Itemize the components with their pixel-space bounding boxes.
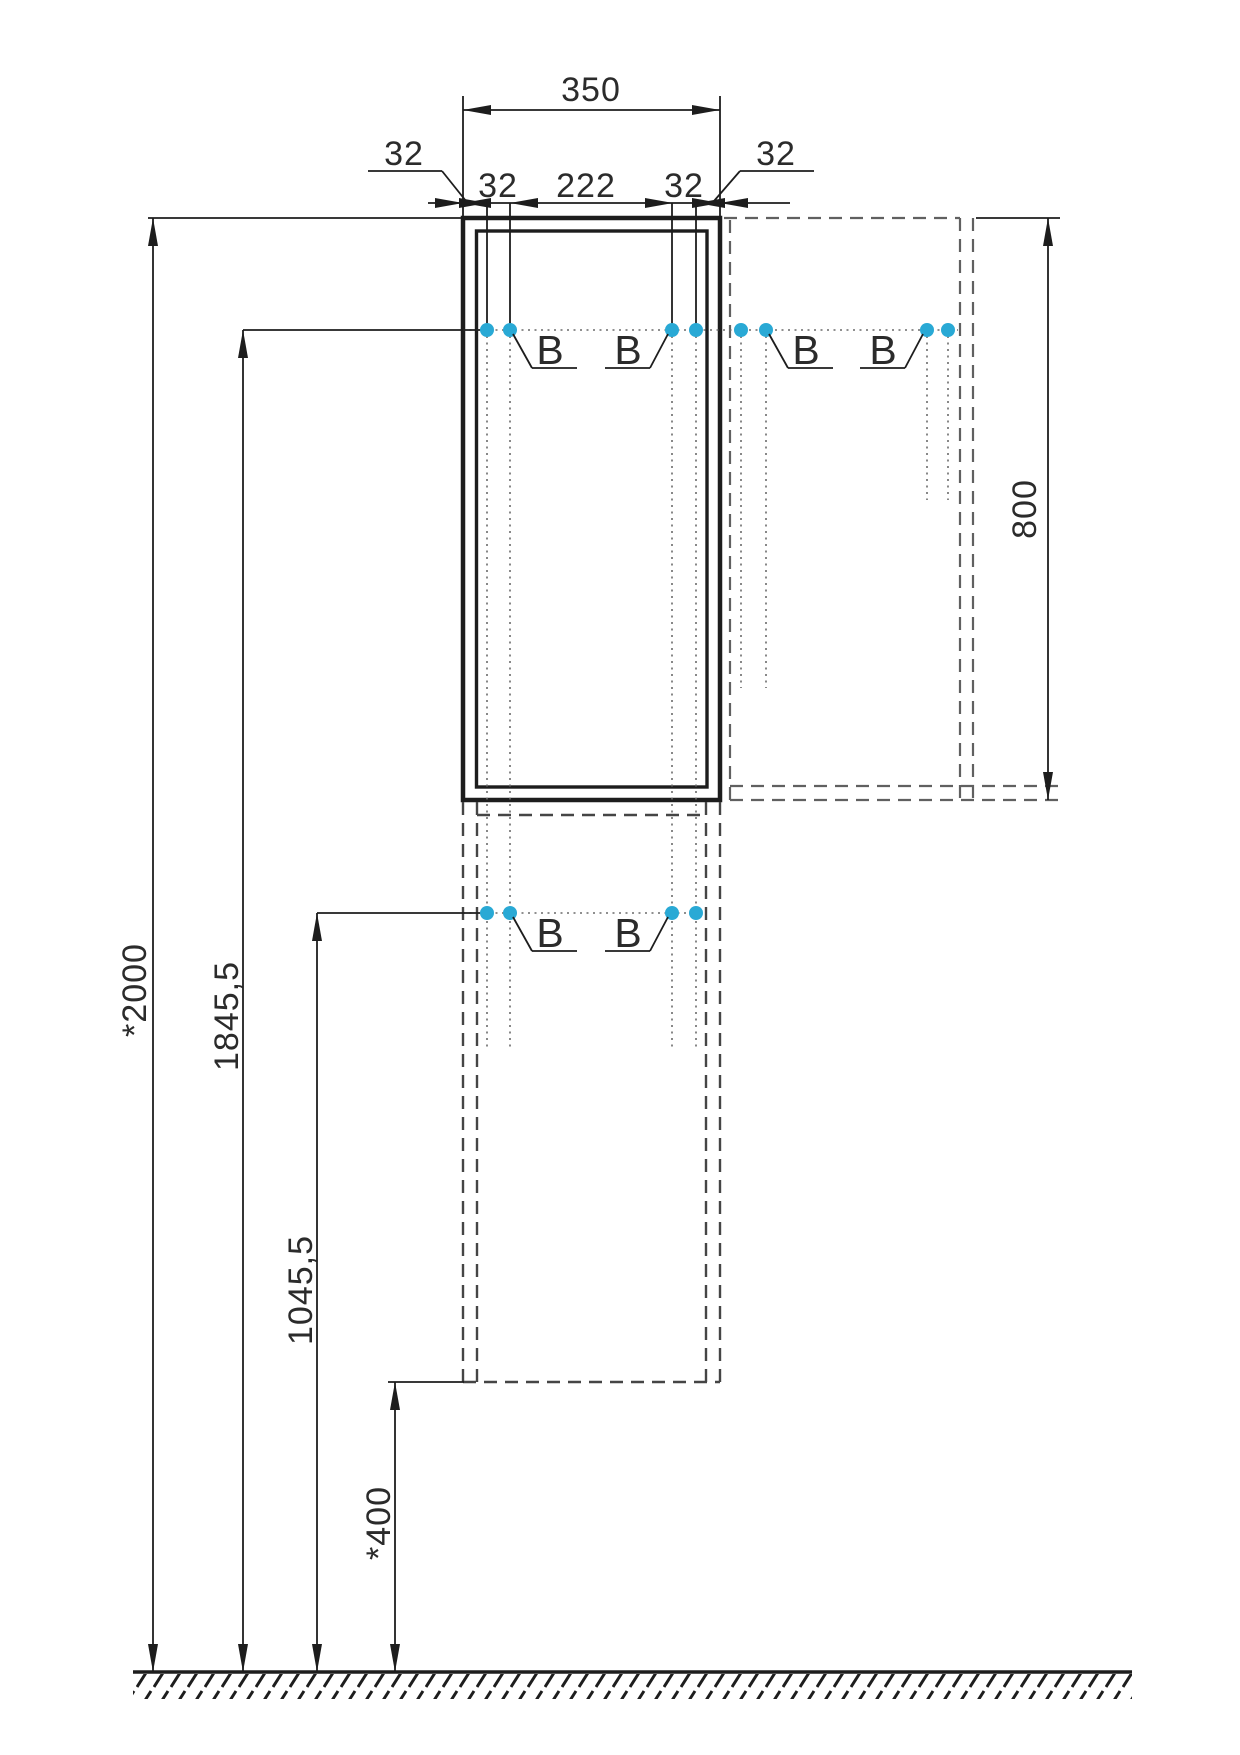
hole-label-b6: B xyxy=(605,910,668,956)
hole-label-text: B xyxy=(869,327,896,373)
hole-label-b5: B xyxy=(513,910,577,956)
dim-top-width-label: 350 xyxy=(561,71,621,109)
leader-edge-offset-left: 32 xyxy=(368,135,466,201)
mounting-hole-dot xyxy=(503,906,517,920)
hole-label-b4: B xyxy=(860,327,923,373)
installation-diagram: 350 32 222 32 32 32 800 xyxy=(0,0,1240,1755)
dim-pitch-center-label: 222 xyxy=(556,167,616,205)
hole-label-b2: B xyxy=(605,327,668,373)
dim-floor-offset-label: *400 xyxy=(360,1486,398,1560)
dimension-side-height: 800 xyxy=(976,218,1060,800)
leader-edge-offset-right: 32 xyxy=(714,135,814,201)
ground-line xyxy=(133,1672,1132,1699)
installation-diagram-page: 350 32 222 32 32 32 800 xyxy=(0,0,1240,1755)
hole-label-text: B xyxy=(792,327,819,373)
mounting-hole-dot xyxy=(759,323,773,337)
dimension-upper-holes-height: 1845,5 xyxy=(208,330,489,1672)
mounting-hole-dot xyxy=(480,906,494,920)
lower-position-outline xyxy=(463,802,720,1382)
dim-pitch-right-label: 32 xyxy=(664,167,704,205)
hole-label-b3: B xyxy=(769,327,833,373)
hole-label-text: B xyxy=(614,327,641,373)
mounting-hole-dot xyxy=(941,323,955,337)
dim-pitch-left-label: 32 xyxy=(478,167,518,205)
mounting-hole-dot xyxy=(734,323,748,337)
hole-label-text: B xyxy=(536,327,563,373)
dim-side-height-label: 800 xyxy=(1006,479,1044,539)
dimension-hole-pitch-row: 32 222 32 xyxy=(428,167,790,330)
dim-edge-right-label: 32 xyxy=(756,135,796,173)
front-view-cabinet xyxy=(463,218,720,800)
mounting-hole-dot xyxy=(689,323,703,337)
mounting-hole-dot xyxy=(503,323,517,337)
dimension-total-height: *2000 xyxy=(116,218,463,1672)
hole-label-text: B xyxy=(536,910,563,956)
dim-edge-left-label: 32 xyxy=(384,135,424,173)
dim-total-height-label: *2000 xyxy=(116,943,154,1037)
mounting-hole-dot xyxy=(689,906,703,920)
dim-lower-holes-label: 1045,5 xyxy=(282,1235,320,1345)
hole-label-text: B xyxy=(614,910,641,956)
cabinet-outer-outline xyxy=(463,218,720,800)
mounting-hole-dot xyxy=(480,323,494,337)
dim-upper-holes-label: 1845,5 xyxy=(208,961,246,1071)
ground-hatching xyxy=(133,1674,1132,1699)
hole-label-b1: B xyxy=(513,327,577,373)
dimension-floor-offset: *400 xyxy=(360,1382,464,1672)
